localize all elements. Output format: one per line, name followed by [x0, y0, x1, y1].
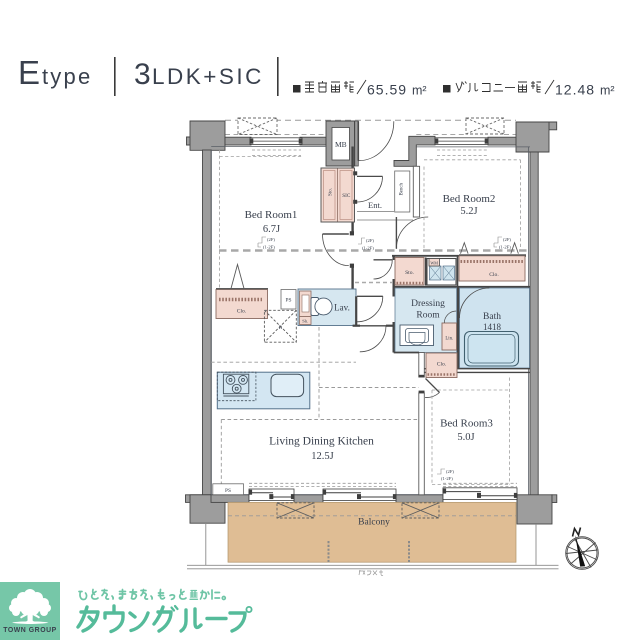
svg-text:Bed Room3: Bed Room3 — [440, 418, 493, 430]
svg-text:m²: m² — [412, 84, 427, 98]
svg-text:Sto.: Sto. — [329, 188, 334, 196]
svg-text:TOWN GROUP: TOWN GROUP — [3, 627, 57, 634]
svg-text:(2F): (2F) — [267, 237, 275, 242]
svg-text:MB: MB — [335, 140, 347, 149]
svg-text:5.2J: 5.2J — [460, 206, 477, 217]
svg-text:Ent.: Ent. — [368, 200, 382, 210]
svg-text:12.48: 12.48 — [555, 82, 595, 98]
svg-text:(1-2F): (1-2F) — [499, 245, 511, 250]
svg-text:Bed Room2: Bed Room2 — [443, 193, 496, 205]
svg-text:Living Dining Kitchen: Living Dining Kitchen — [269, 436, 374, 448]
svg-text:Clo.: Clo. — [489, 272, 499, 278]
svg-text:6.7J: 6.7J — [263, 224, 280, 235]
svg-text:Clo.: Clo. — [437, 362, 447, 368]
svg-text:(1-2F): (1-2F) — [441, 476, 453, 481]
svg-text:Room: Room — [416, 311, 440, 321]
svg-text:Sto.: Sto. — [405, 270, 414, 276]
svg-text:Clo.: Clo. — [237, 309, 247, 315]
svg-text:12.5J: 12.5J — [311, 451, 333, 462]
svg-text:PS: PS — [225, 488, 231, 494]
svg-text:PS: PS — [286, 298, 292, 304]
svg-text:Balcony: Balcony — [358, 518, 390, 528]
svg-text:Bed Room1: Bed Room1 — [245, 209, 298, 221]
svg-text:3: 3 — [134, 58, 151, 91]
svg-text:SIC: SIC — [342, 193, 351, 199]
svg-text:E: E — [18, 54, 41, 91]
svg-text:LDK+SIC: LDK+SIC — [152, 64, 264, 89]
svg-text:Bath: Bath — [483, 312, 501, 322]
svg-text:5.0J: 5.0J — [457, 432, 474, 443]
svg-text:R: R — [279, 325, 283, 331]
svg-text:m²: m² — [600, 84, 615, 98]
svg-text:Lin.: Lin. — [445, 337, 453, 342]
svg-text:Lav.: Lav. — [334, 303, 350, 313]
svg-text:WM: WM — [430, 260, 438, 265]
svg-text:type: type — [42, 64, 92, 89]
svg-text:(1-2F): (1-2F) — [263, 245, 275, 250]
svg-text:Sh.: Sh. — [302, 319, 308, 324]
svg-text:65.59: 65.59 — [367, 82, 407, 98]
svg-text:(2F): (2F) — [446, 469, 454, 474]
svg-text:(1-2F): (1-2F) — [362, 246, 374, 251]
svg-text:1418: 1418 — [483, 322, 502, 332]
svg-text:Bench: Bench — [400, 182, 405, 195]
svg-text:(2F): (2F) — [503, 237, 511, 242]
svg-text:(2F): (2F) — [366, 238, 374, 243]
svg-text:Dressing: Dressing — [411, 299, 445, 309]
